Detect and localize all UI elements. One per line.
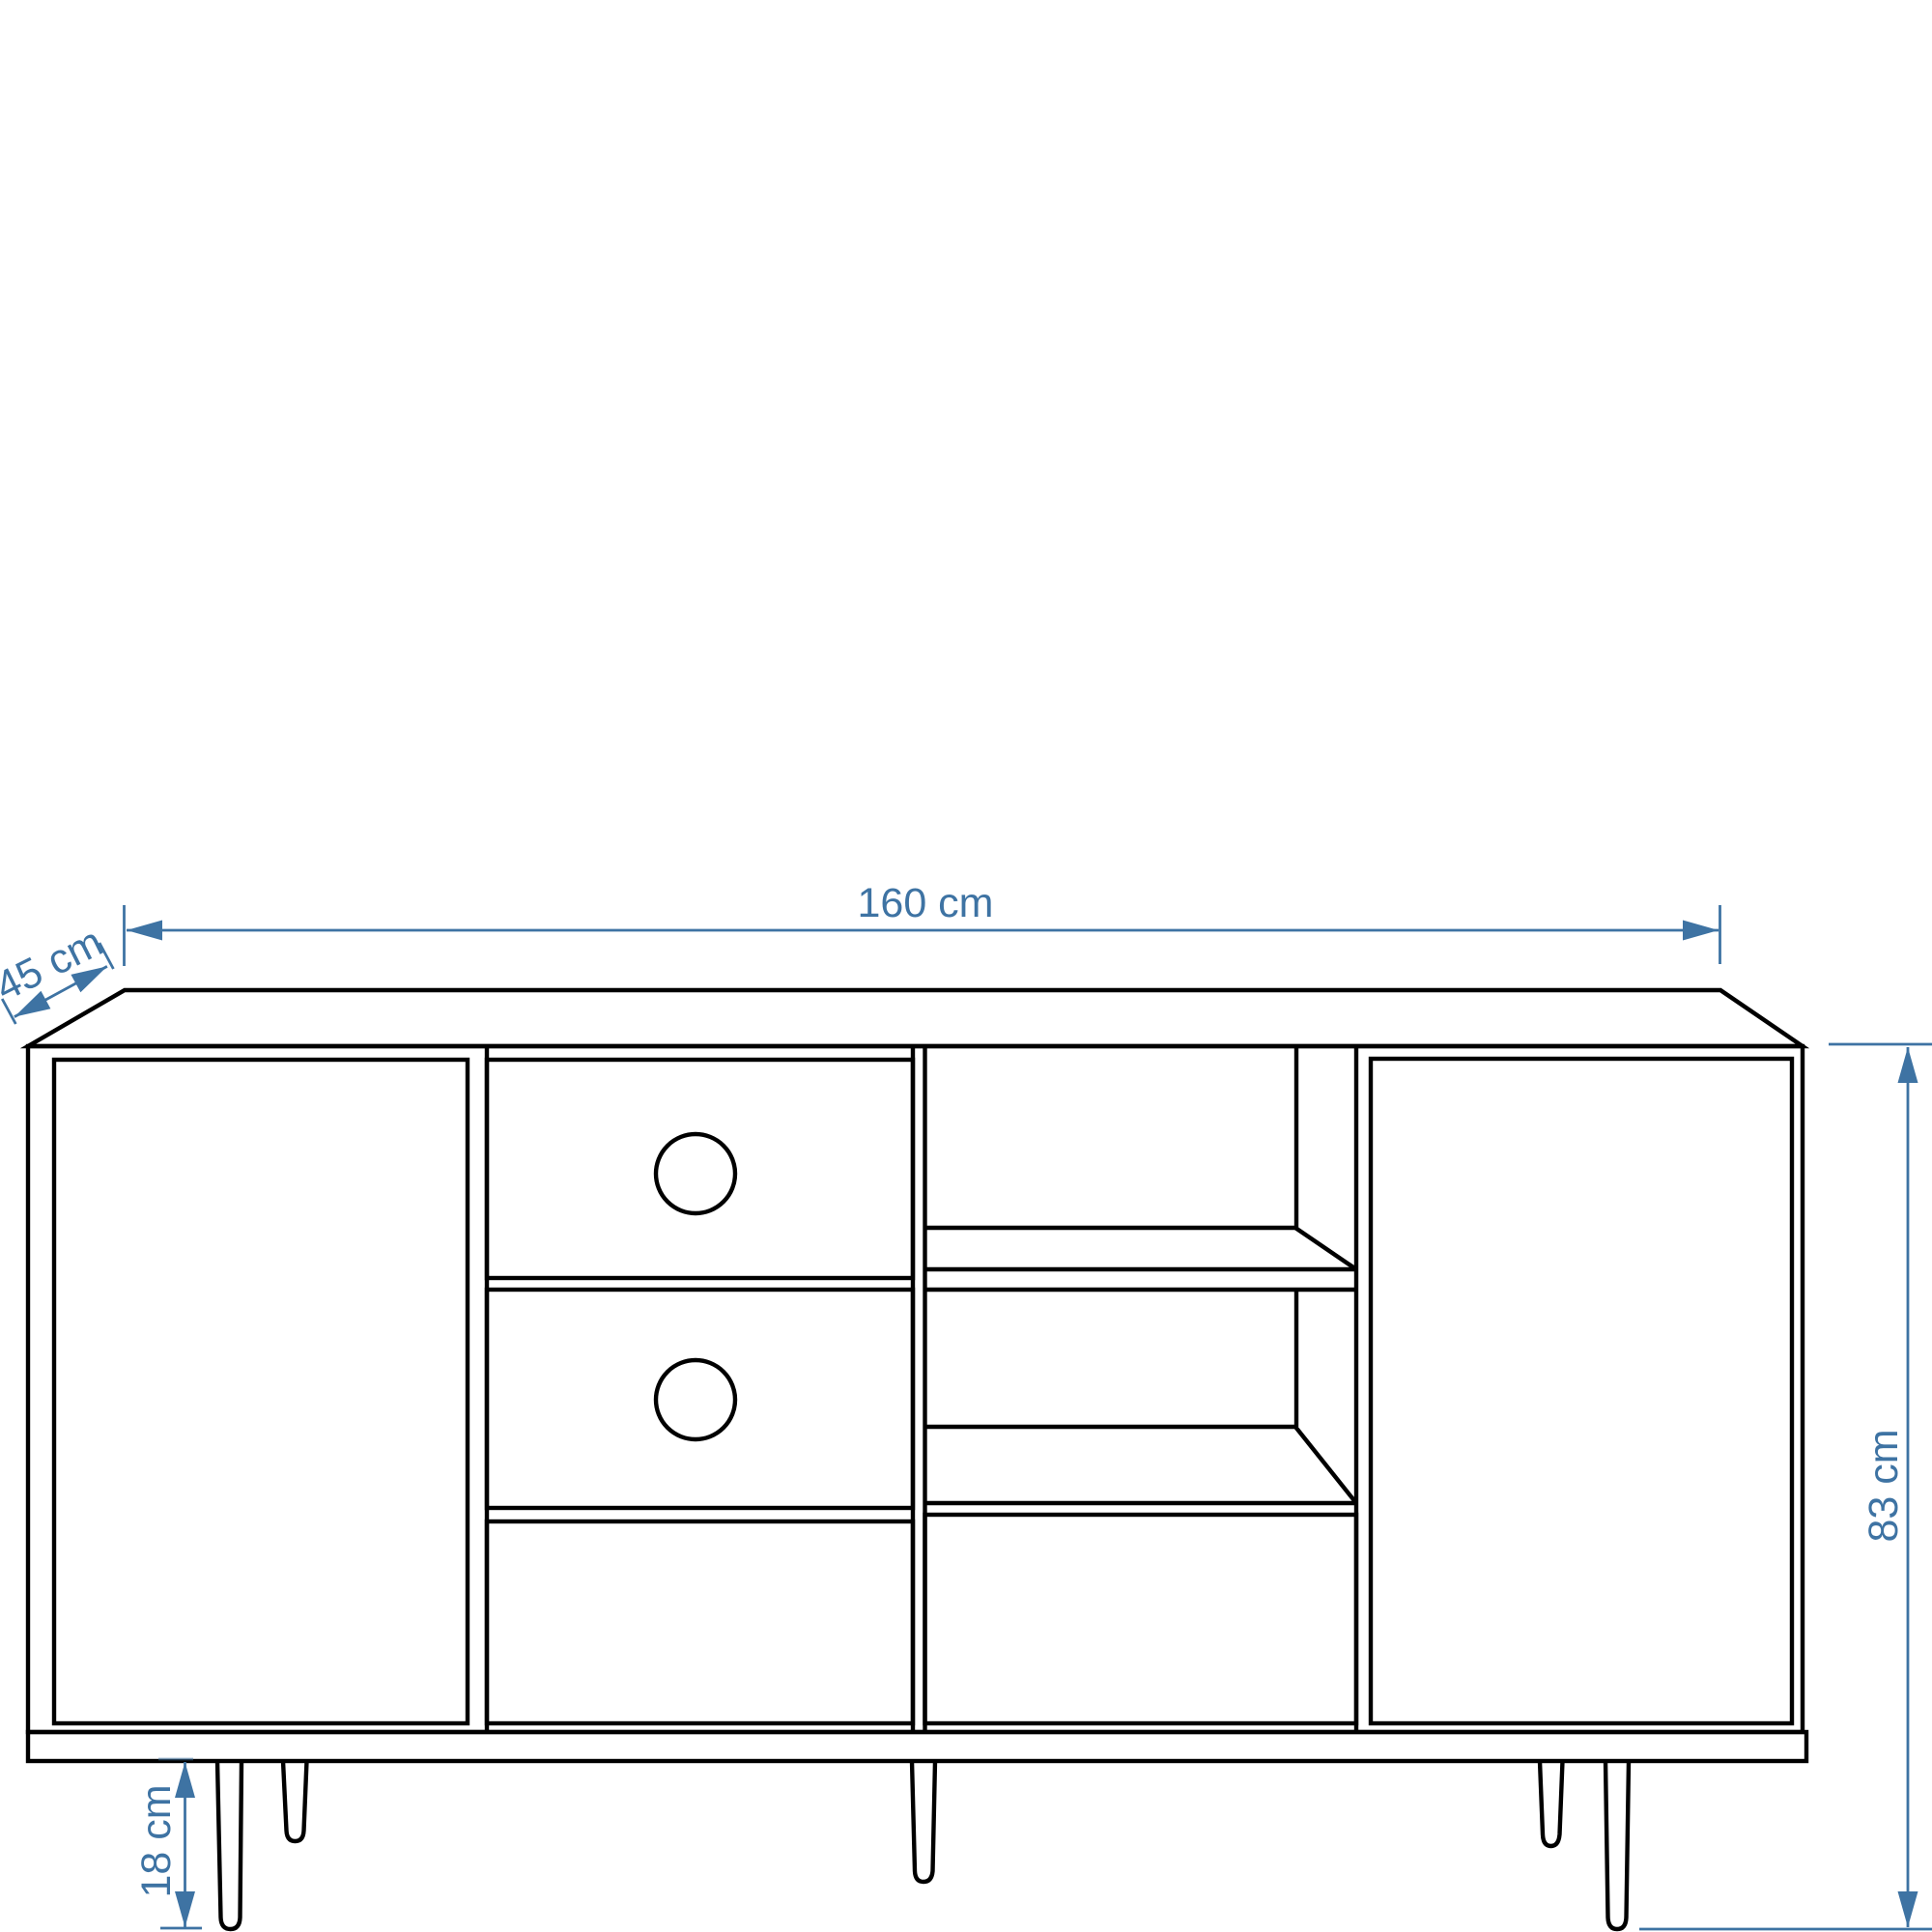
svg-text:83 cm: 83 cm xyxy=(1861,1429,1907,1542)
svg-text:160 cm: 160 cm xyxy=(857,880,993,926)
svg-text:18 cm: 18 cm xyxy=(133,1784,180,1897)
